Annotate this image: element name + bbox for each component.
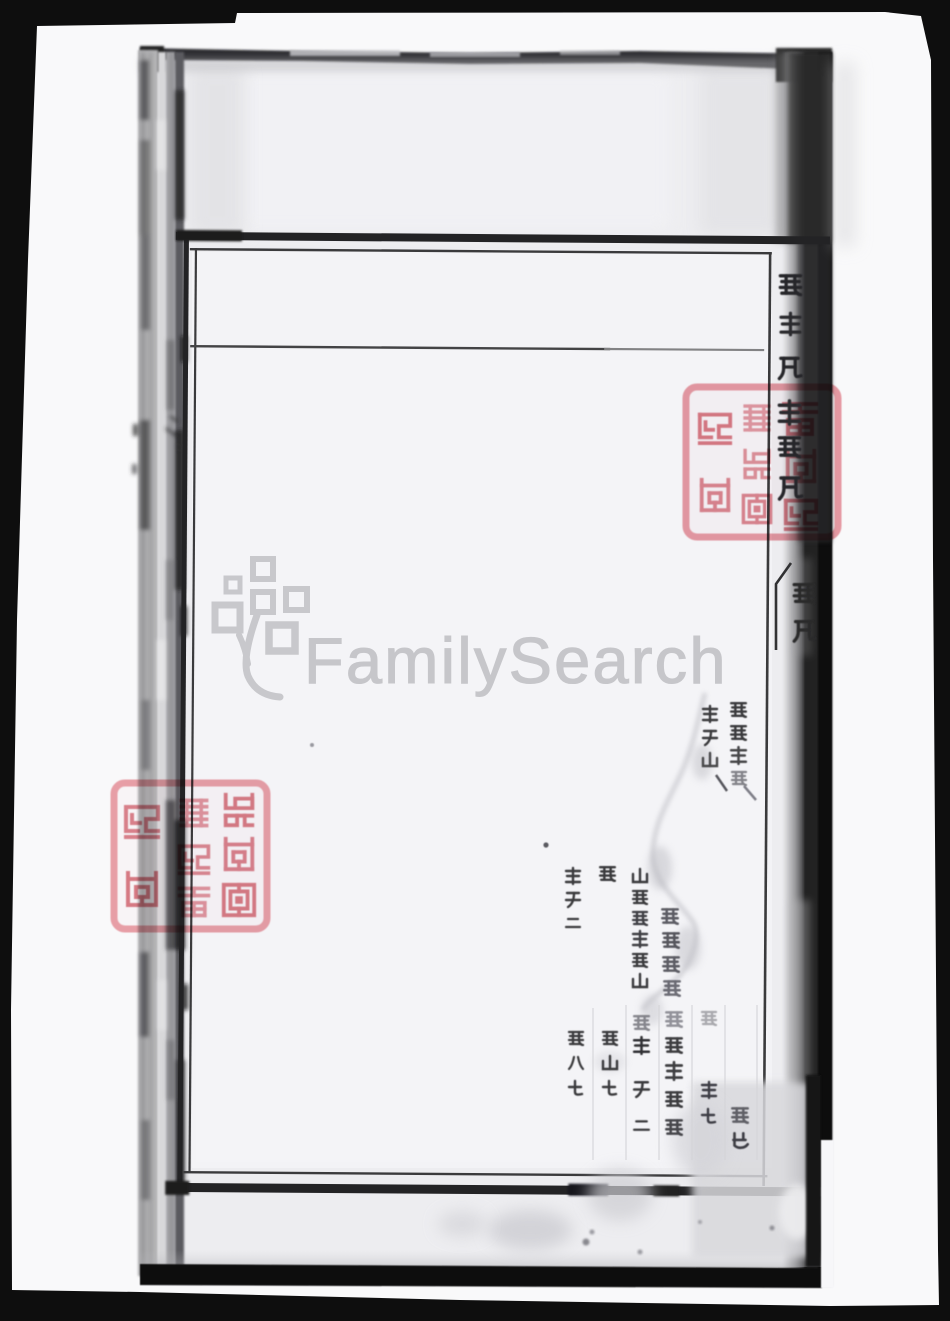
svg-text:FamilySearch: FamilySearch (304, 624, 728, 697)
